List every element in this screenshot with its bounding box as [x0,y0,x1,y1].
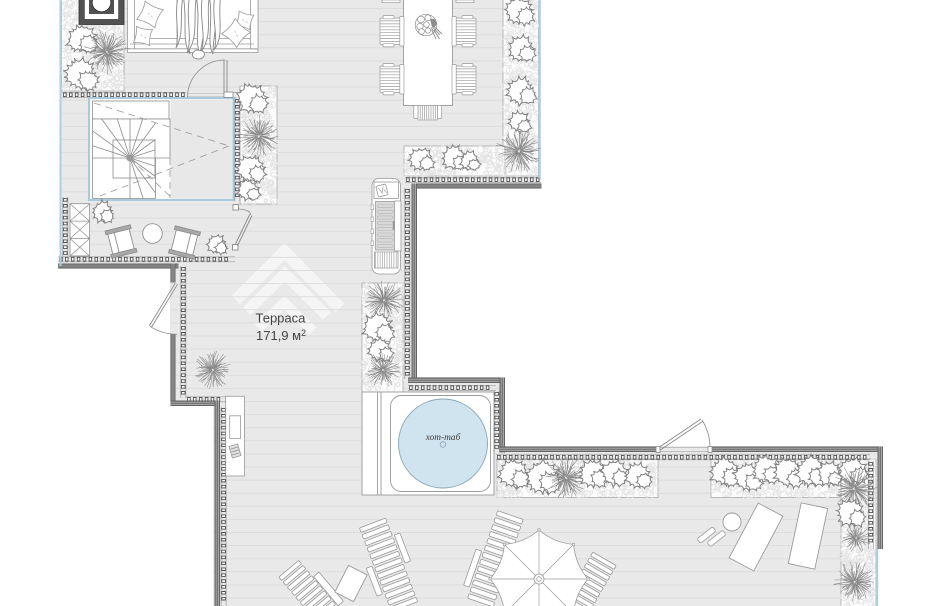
svg-text:Терраса: Терраса [256,311,307,326]
svg-text:171,9 м2: 171,9 м2 [256,328,306,343]
